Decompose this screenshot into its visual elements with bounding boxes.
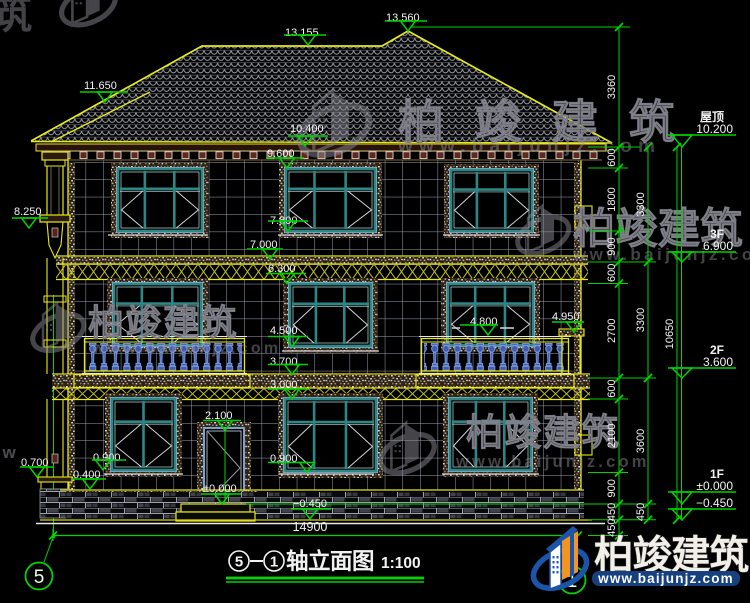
svg-text:2100: 2100 [606, 424, 618, 448]
svg-text:筑: 筑 [0, 0, 32, 37]
svg-text:柏竣建筑: 柏竣建筑 [88, 302, 238, 343]
svg-text:900: 900 [606, 237, 618, 255]
svg-text:1: 1 [270, 554, 278, 571]
svg-text:4.950: 4.950 [552, 311, 580, 323]
svg-text:4.800: 4.800 [470, 316, 498, 328]
svg-text:600: 600 [606, 264, 618, 282]
svg-text:−0.450: −0.450 [696, 496, 733, 510]
svg-text:5: 5 [34, 567, 45, 588]
svg-text:14900: 14900 [293, 520, 328, 534]
svg-text:10650: 10650 [664, 319, 676, 350]
svg-text:3360: 3360 [606, 75, 618, 99]
svg-text:www.baijunjz.com: www.baijunjz.com [91, 340, 281, 357]
svg-text:±0.000: ±0.000 [696, 479, 733, 493]
svg-text:900: 900 [606, 479, 618, 497]
svg-text:www: www [0, 443, 19, 462]
svg-text:4.500: 4.500 [270, 325, 298, 337]
svg-text:600: 600 [606, 148, 618, 166]
svg-text:2700: 2700 [606, 319, 618, 343]
svg-text:11.650: 11.650 [84, 80, 117, 92]
svg-text:3600: 3600 [635, 429, 647, 453]
svg-text:10.200: 10.200 [696, 122, 733, 136]
svg-text:轴立面图: 轴立面图 [286, 548, 374, 574]
svg-text:3300: 3300 [635, 308, 647, 332]
svg-text:±0.000: ±0.000 [203, 483, 237, 495]
svg-text:1800: 1800 [606, 187, 618, 211]
svg-text:www.baijunjz.com: www.baijunjz.com [597, 571, 734, 586]
svg-text:www.baijunjz.com: www.baijunjz.com [455, 453, 650, 471]
svg-text:5: 5 [235, 554, 243, 571]
svg-text:450: 450 [606, 503, 618, 521]
svg-text:3300: 3300 [635, 192, 647, 216]
svg-text:8.250: 8.250 [14, 206, 42, 218]
svg-text:600: 600 [606, 379, 618, 397]
svg-text:6.900: 6.900 [703, 239, 733, 253]
svg-text:1:100: 1:100 [381, 555, 421, 572]
svg-text:10.400: 10.400 [290, 123, 324, 135]
svg-text:−0.450: −0.450 [293, 498, 327, 510]
svg-text:3.600: 3.600 [703, 355, 733, 369]
svg-text:柏竣建筑: 柏竣建筑 [466, 411, 620, 453]
svg-text:450: 450 [635, 503, 647, 521]
svg-text:3.700: 3.700 [270, 356, 298, 368]
